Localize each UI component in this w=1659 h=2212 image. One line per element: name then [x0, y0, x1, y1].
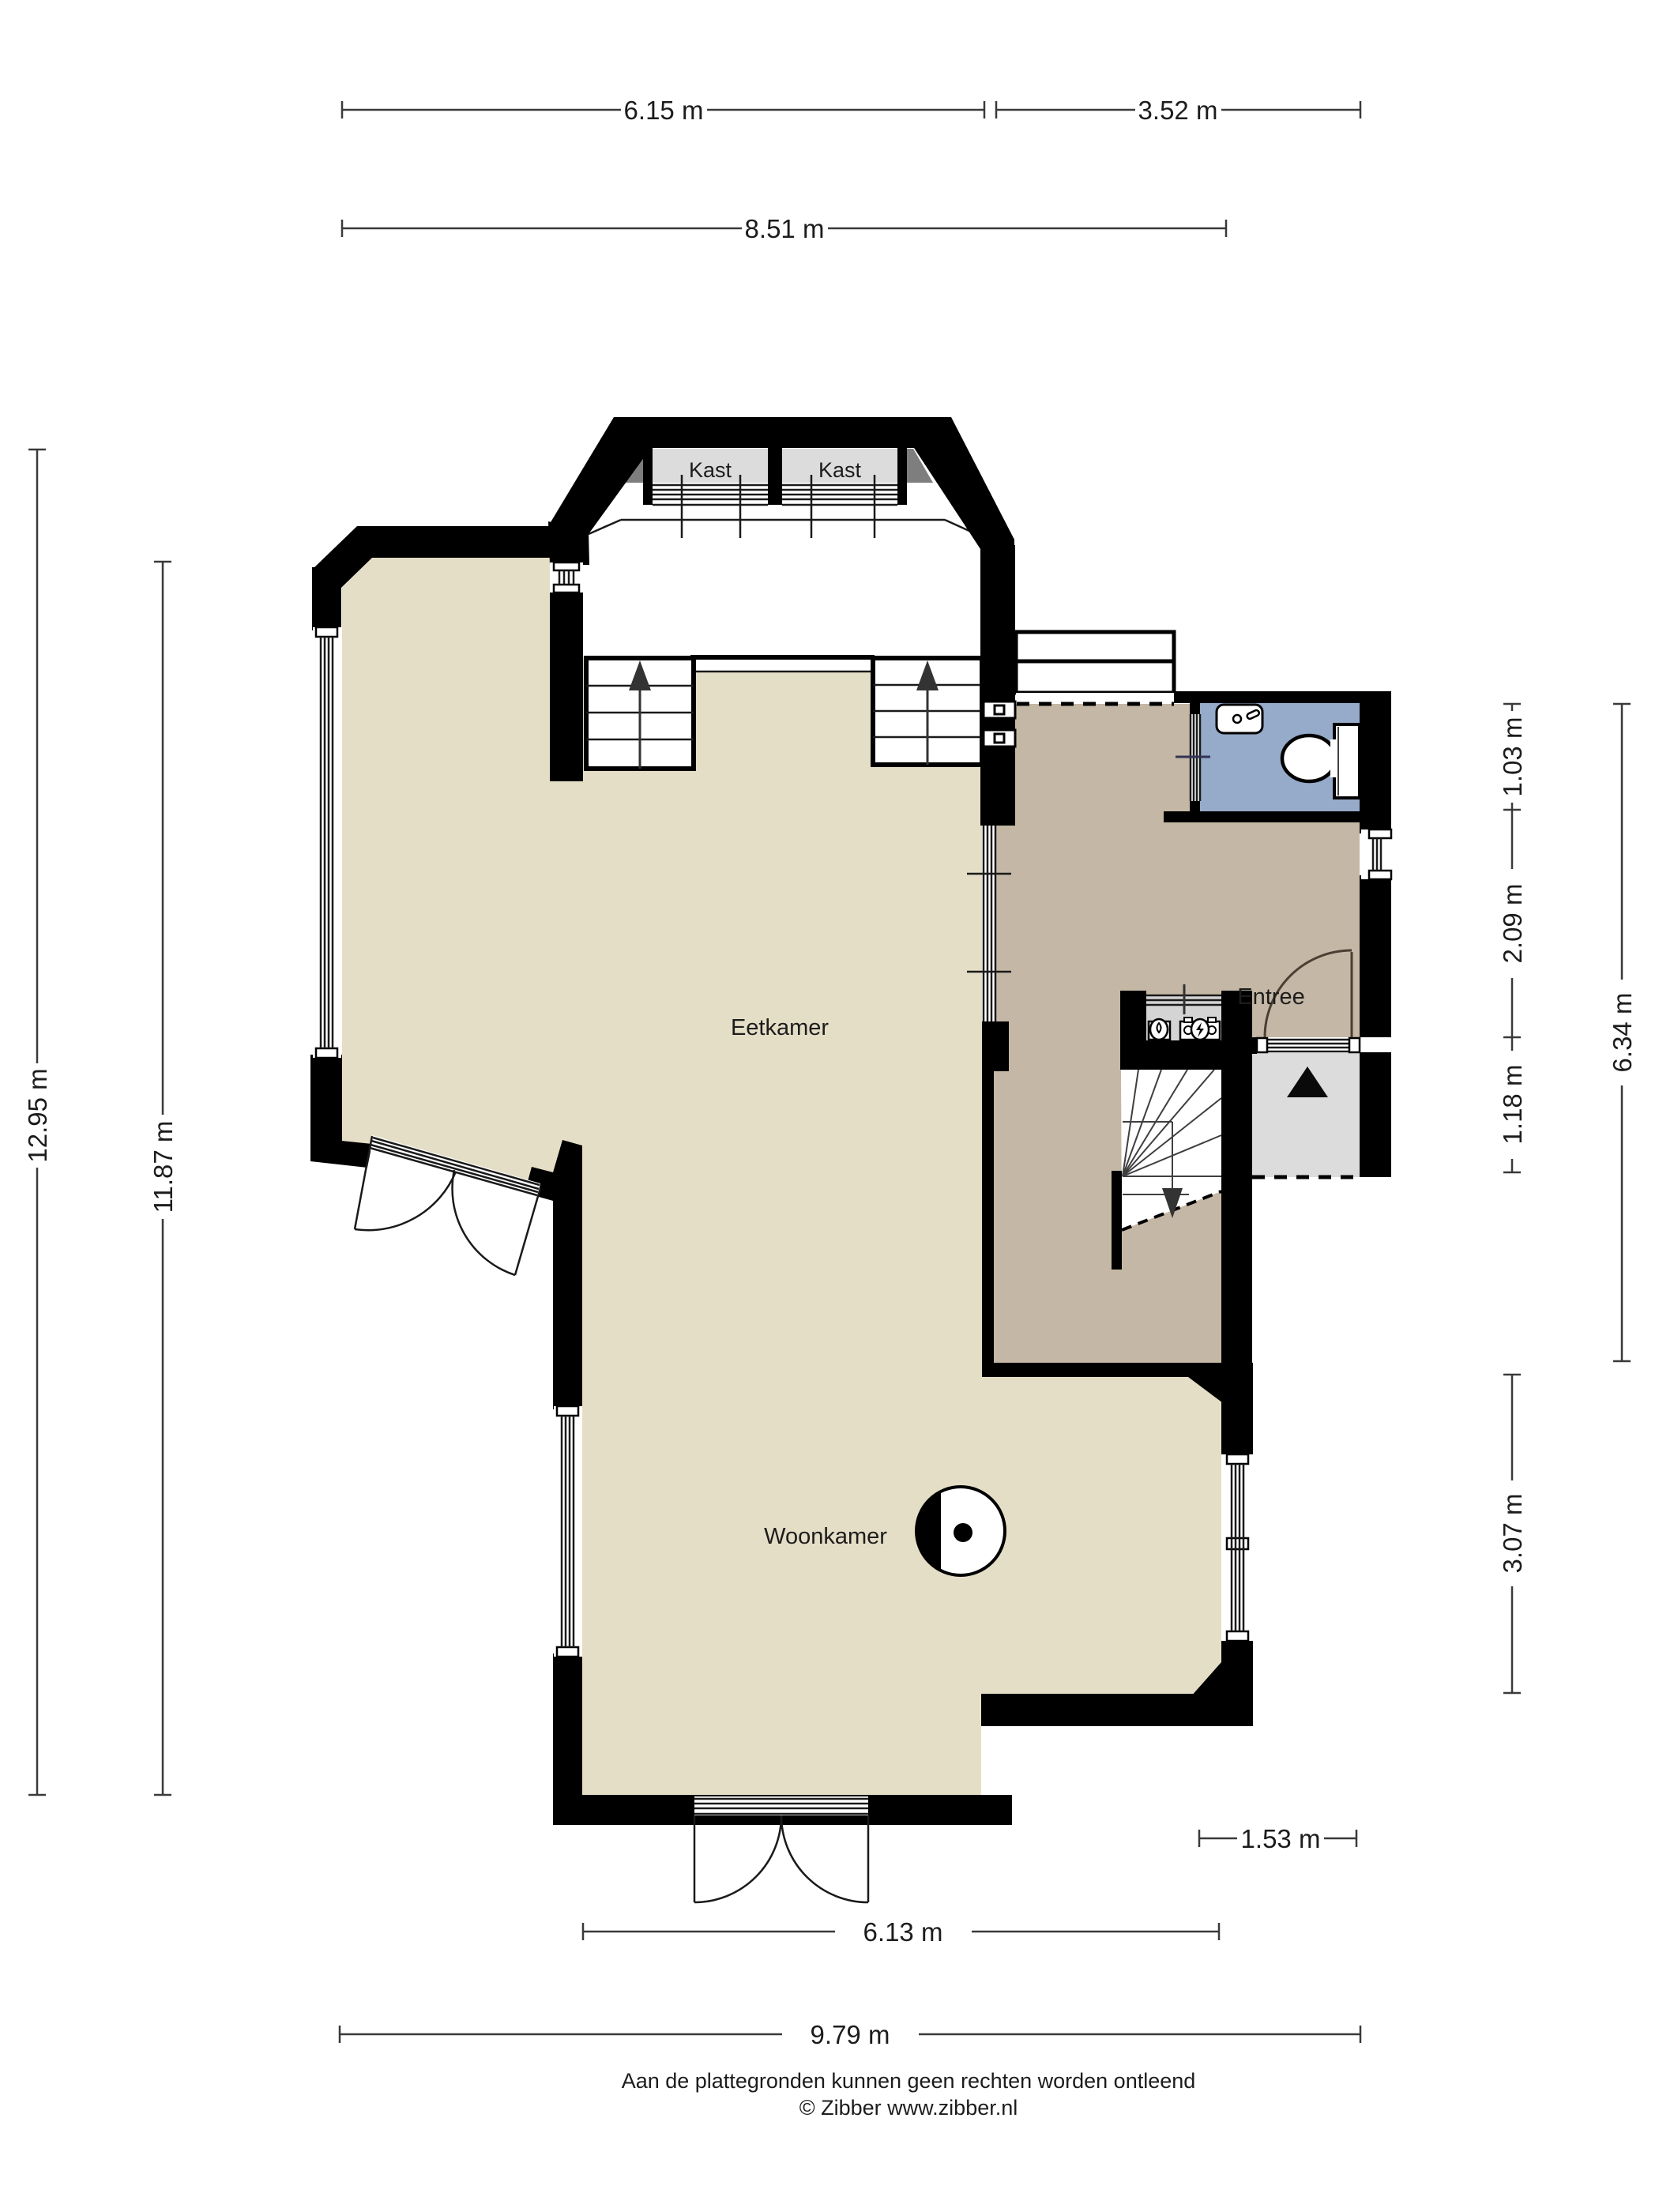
svg-text:Entree: Entree [1237, 984, 1304, 1010]
svg-text:1.03 m: 1.03 m [1498, 717, 1527, 797]
svg-text:9.79 m: 9.79 m [811, 2020, 890, 2049]
svg-text:6.34 m: 6.34 m [1608, 993, 1637, 1073]
svg-text:2.09 m: 2.09 m [1498, 884, 1527, 964]
svg-text:3.52 m: 3.52 m [1138, 96, 1218, 125]
svg-text:Eetkamer: Eetkamer [731, 1015, 829, 1040]
svg-text:Kast: Kast [818, 458, 862, 482]
svg-text:11.87 m: 11.87 m [149, 1121, 178, 1213]
svg-text:Kast: Kast [689, 458, 732, 482]
svg-text:1.53 m: 1.53 m [1241, 1824, 1321, 1853]
svg-text:6.15 m: 6.15 m [624, 96, 704, 125]
svg-text:Woonkamer: Woonkamer [764, 1524, 887, 1549]
svg-text:6.13 m: 6.13 m [863, 1917, 943, 1947]
svg-text:1.18 m: 1.18 m [1498, 1065, 1527, 1145]
svg-text:3.07 m: 3.07 m [1498, 1494, 1527, 1574]
svg-text:© Zibber www.zibber.nl: © Zibber www.zibber.nl [799, 2096, 1018, 2120]
svg-text:Aan de plattegronden kunnen ge: Aan de plattegronden kunnen geen rechten… [622, 2069, 1196, 2093]
svg-text:8.51 m: 8.51 m [745, 214, 825, 243]
svg-text:12.95 m: 12.95 m [23, 1068, 52, 1162]
